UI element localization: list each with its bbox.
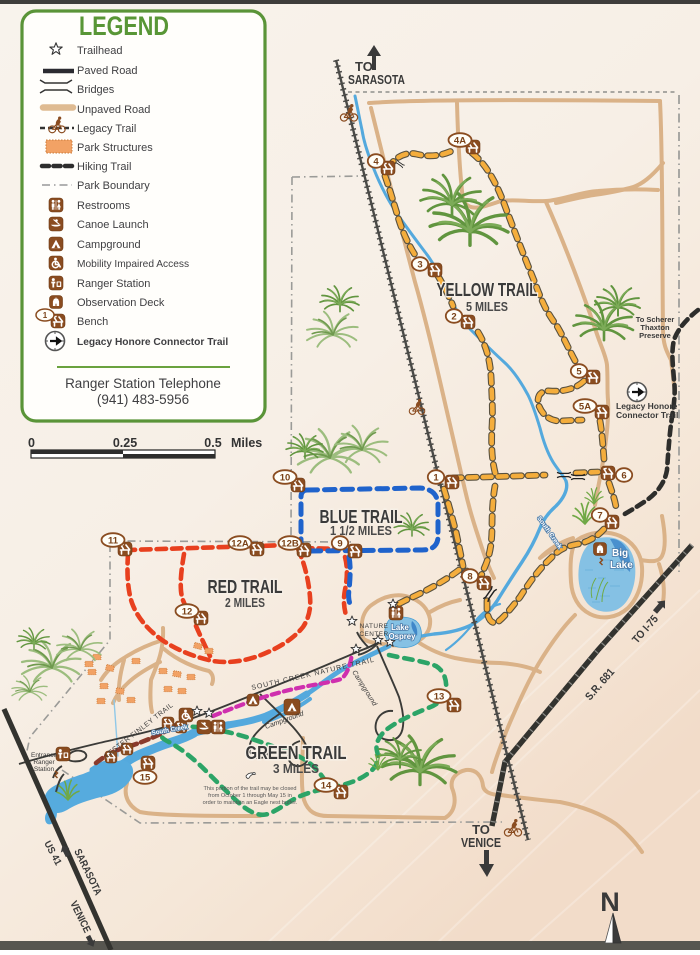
svg-text:6: 6 (621, 470, 626, 481)
svg-text:Ranger Station: Ranger Station (77, 278, 150, 290)
svg-text:TO: TO (355, 59, 373, 74)
svg-text:Lake: Lake (610, 560, 633, 571)
svg-text:Lake: Lake (391, 623, 409, 632)
svg-text:3: 3 (417, 259, 422, 270)
svg-text:Bench: Bench (77, 316, 108, 328)
svg-text:0.5: 0.5 (204, 436, 221, 450)
svg-text:3 MILES: 3 MILES (273, 761, 319, 776)
svg-text:4A: 4A (454, 135, 466, 146)
svg-text:Entrance: Entrance (31, 752, 57, 759)
svg-text:Mobility Impaired Access: Mobility Impaired Access (77, 259, 189, 270)
svg-text:LEGEND: LEGEND (79, 11, 169, 41)
svg-text:order to maintain an Eagle nes: order to maintain an Eagle nest buffer. (203, 800, 298, 806)
svg-text:9: 9 (337, 538, 342, 549)
svg-text:Ranger Station Telephone: Ranger Station Telephone (65, 376, 221, 391)
svg-text:0: 0 (28, 436, 35, 450)
svg-text:NATURE: NATURE (360, 623, 389, 630)
svg-text:Connector Trail: Connector Trail (616, 410, 678, 420)
svg-text:Park Structures: Park Structures (77, 142, 153, 154)
svg-text:15: 15 (140, 772, 151, 783)
svg-text:Trailhead: Trailhead (77, 45, 122, 57)
svg-text:Miles: Miles (231, 436, 262, 450)
svg-text:TO: TO (472, 822, 490, 837)
svg-text:RED TRAIL: RED TRAIL (208, 576, 283, 597)
svg-text:14: 14 (321, 780, 332, 791)
svg-text:N: N (600, 887, 620, 917)
svg-text:12A: 12A (231, 538, 249, 549)
svg-text:12B: 12B (281, 538, 299, 549)
svg-text:10: 10 (280, 472, 291, 483)
svg-text:8: 8 (467, 571, 472, 582)
svg-text:from October 1 through May 15: from October 1 through May 15 in (208, 793, 292, 799)
svg-text:5 MILES: 5 MILES (466, 300, 508, 314)
svg-text:4: 4 (373, 156, 379, 167)
svg-text:Hiking Trail: Hiking Trail (77, 161, 131, 173)
svg-text:5A: 5A (579, 401, 591, 412)
svg-text:7: 7 (597, 510, 602, 521)
svg-text:Station: Station (34, 766, 55, 773)
svg-text:Osprey: Osprey (389, 632, 417, 641)
svg-text:GREEN TRAIL: GREEN TRAIL (246, 742, 347, 763)
svg-text:VENICE: VENICE (461, 836, 501, 850)
svg-text:Park Boundary: Park Boundary (77, 180, 150, 192)
svg-text:Observation Deck: Observation Deck (77, 297, 165, 309)
svg-text:Paved Road: Paved Road (77, 65, 138, 77)
svg-text:1: 1 (43, 311, 48, 320)
svg-text:Ranger: Ranger (33, 759, 55, 766)
svg-text:11: 11 (108, 535, 119, 546)
svg-text:Restrooms: Restrooms (77, 200, 131, 212)
svg-text:YELLOW TRAIL: YELLOW TRAIL (437, 279, 538, 300)
svg-text:2 MILES: 2 MILES (225, 596, 265, 610)
svg-text:Legacy Trail: Legacy Trail (77, 123, 136, 135)
svg-text:Canoe Launch: Canoe Launch (77, 219, 149, 231)
svg-text:Unpaved Road: Unpaved Road (77, 104, 150, 116)
svg-text:13: 13 (434, 691, 445, 702)
svg-text:SARASOTA: SARASOTA (348, 73, 405, 87)
svg-text:Preserve: Preserve (639, 331, 671, 340)
svg-text:0.25: 0.25 (113, 436, 137, 450)
svg-text:Campground: Campground (77, 239, 141, 251)
svg-text:1 1/2 MILES: 1 1/2 MILES (330, 524, 392, 538)
svg-text:5: 5 (576, 366, 582, 377)
svg-text:12: 12 (182, 606, 193, 617)
svg-text:Legacy Honore Connector Trail: Legacy Honore Connector Trail (77, 337, 228, 348)
svg-text:1: 1 (433, 472, 439, 483)
svg-text:2: 2 (451, 311, 456, 322)
svg-text:(941) 483-5956: (941) 483-5956 (97, 392, 189, 407)
svg-text:This portion of the trail may: This portion of the trail may be closed (204, 786, 297, 792)
svg-text:Big: Big (612, 548, 628, 559)
svg-text:CENTER: CENTER (359, 631, 388, 638)
svg-text:Bridges: Bridges (77, 84, 115, 96)
